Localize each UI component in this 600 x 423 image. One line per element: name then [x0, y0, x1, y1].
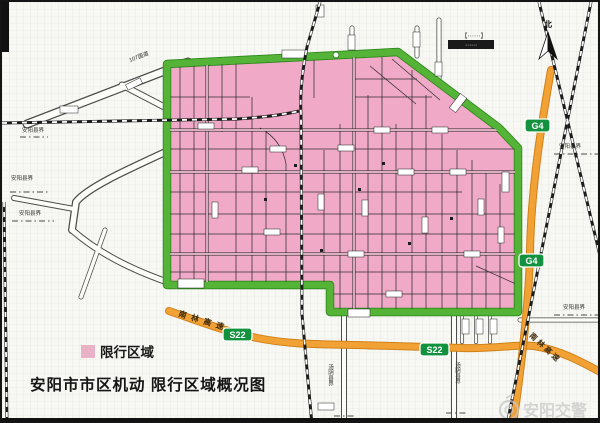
anyang-county-label: 安阳县界	[19, 209, 42, 217]
dark-road-label: ⋯⋯	[465, 43, 477, 49]
north-label: 北	[544, 19, 552, 29]
svg-text:S22: S22	[426, 345, 442, 355]
s22-badge-2: S22	[420, 343, 449, 356]
svg-text:G4: G4	[531, 121, 543, 131]
interchange-marker-icon	[333, 52, 339, 58]
anyang-county-label: 安阳县界	[11, 174, 34, 182]
svg-text:G4: G4	[525, 256, 537, 266]
tangyin-county-label: 汤阴县界	[454, 361, 461, 386]
legend-swatch	[81, 345, 95, 358]
g4-badge-2: G4	[519, 254, 544, 267]
watermark-text: 安阳交警	[523, 401, 587, 420]
legend-label: 限行区域	[100, 344, 154, 360]
s22-badge-1: S22	[223, 328, 252, 341]
map-title: 安阳市市区机动 限行区域概况图	[30, 375, 266, 394]
svg-text:S22: S22	[229, 330, 245, 340]
anyang-county-label: 安阳县界	[559, 142, 582, 150]
restriction-zone-map: 【⋯⋯】 ⋯⋯ 107国道 南林高速 南林高速 G4	[2, 2, 600, 423]
tangyin-county-label: 汤阴县界	[327, 363, 334, 388]
anyang-county-label: 安阳县界	[22, 126, 45, 134]
g4-badge-1: G4	[525, 119, 550, 132]
bracket-label: 【⋯⋯】	[461, 32, 487, 40]
map-canvas: 【⋯⋯】 ⋯⋯ 107国道 南林高速 南林高速 G4	[0, 0, 600, 423]
anyang-county-label: 安阳县界	[563, 303, 586, 311]
legend: 限行区域	[81, 344, 154, 360]
